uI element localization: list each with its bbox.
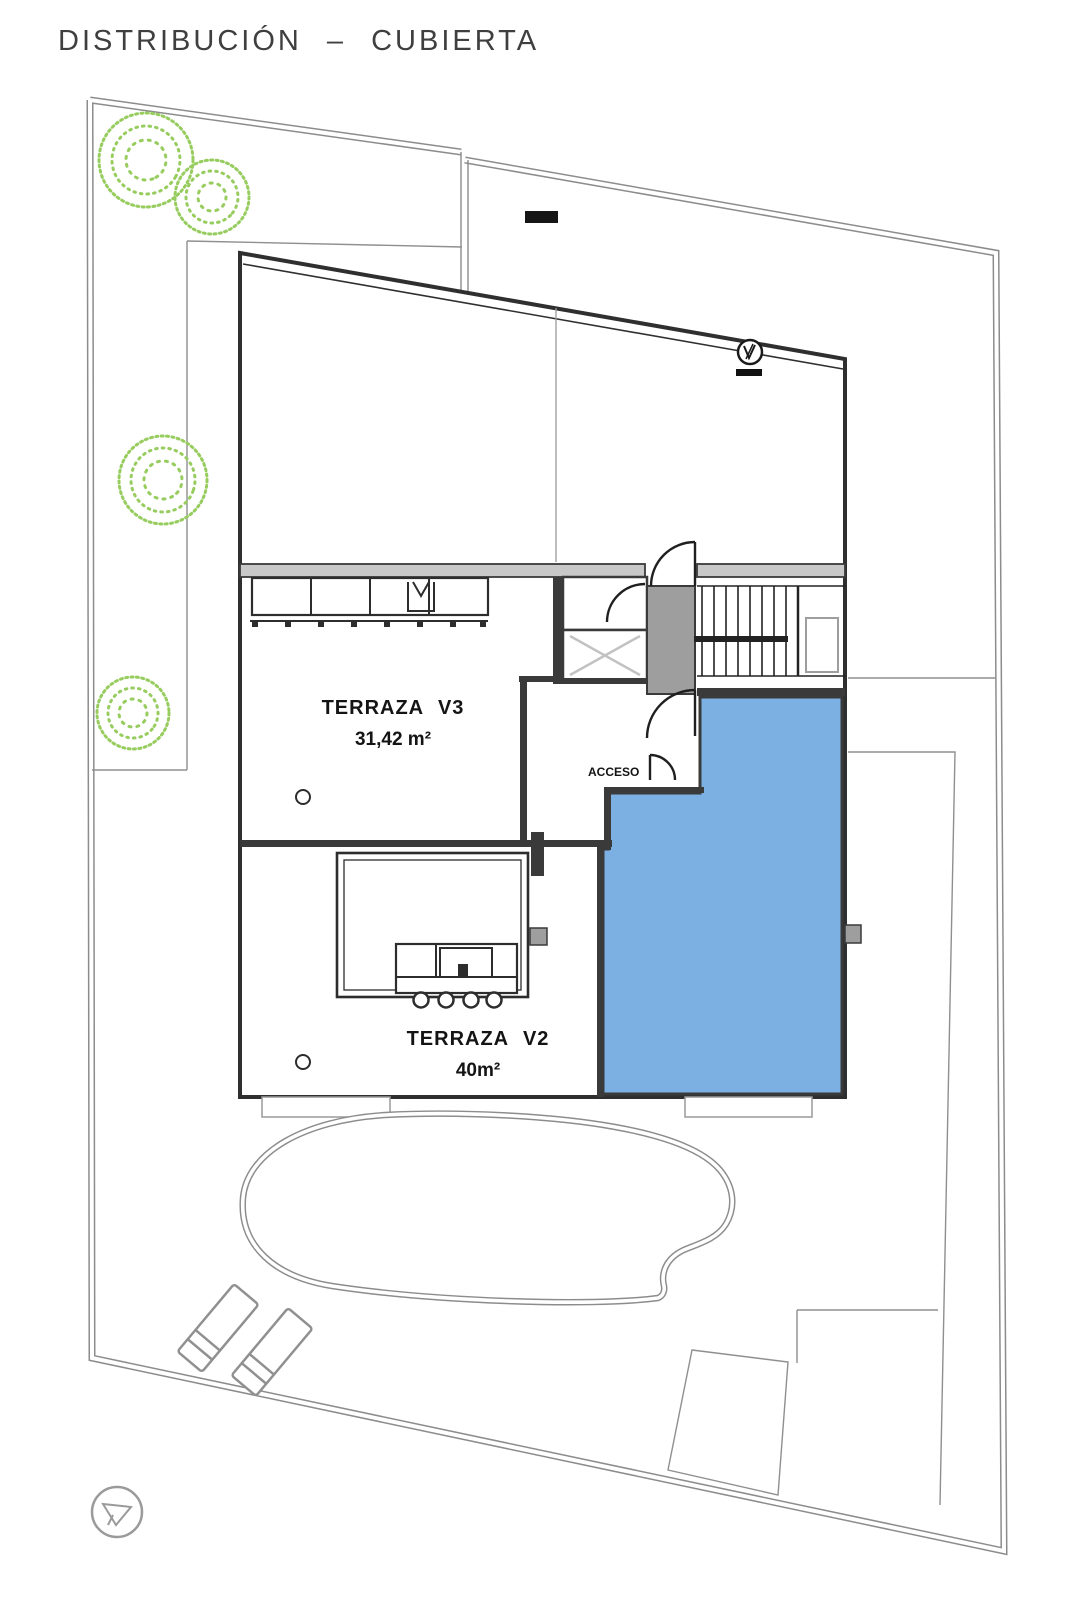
trees: [97, 113, 249, 749]
wall-tab: [530, 928, 547, 945]
building: [240, 253, 861, 1097]
lobby-landing: [647, 586, 695, 694]
wall-upper-right: [697, 564, 845, 577]
level-marker-icon: [736, 340, 762, 376]
room-label-terraza-v3: TERRAZA V3: [322, 697, 465, 719]
tree-icon: [99, 113, 193, 207]
pool: [243, 1114, 733, 1303]
page-title: DISTRIBUCIÓN – CUBIERTA: [58, 24, 539, 57]
building-base-tabs: [262, 1097, 812, 1117]
floor-plan-canvas: DISTRIBUCIÓN – CUBIERTA: [0, 0, 1084, 1600]
bar-counter: [396, 944, 517, 993]
wall-dash-mark: [525, 211, 558, 223]
tree-icon: [119, 436, 207, 524]
wall-upper-left: [240, 564, 645, 577]
drain-icon: [296, 790, 310, 804]
room-area-terraza-v3: 31,42 m²: [355, 729, 431, 750]
floor-plan-page: DISTRIBUCIÓN – CUBIERTA: [0, 0, 1084, 1600]
tree-icon: [97, 677, 169, 749]
drain-icon: [296, 1055, 310, 1069]
room-label-terraza-v2: TERRAZA V2: [407, 1028, 550, 1050]
tree-icon: [175, 160, 249, 234]
acceso-label: ACCESO: [588, 765, 639, 779]
room-area-terraza-v2: 40m²: [456, 1060, 500, 1081]
north-indicator-icon: [92, 1487, 142, 1537]
wall-tab: [845, 925, 861, 943]
